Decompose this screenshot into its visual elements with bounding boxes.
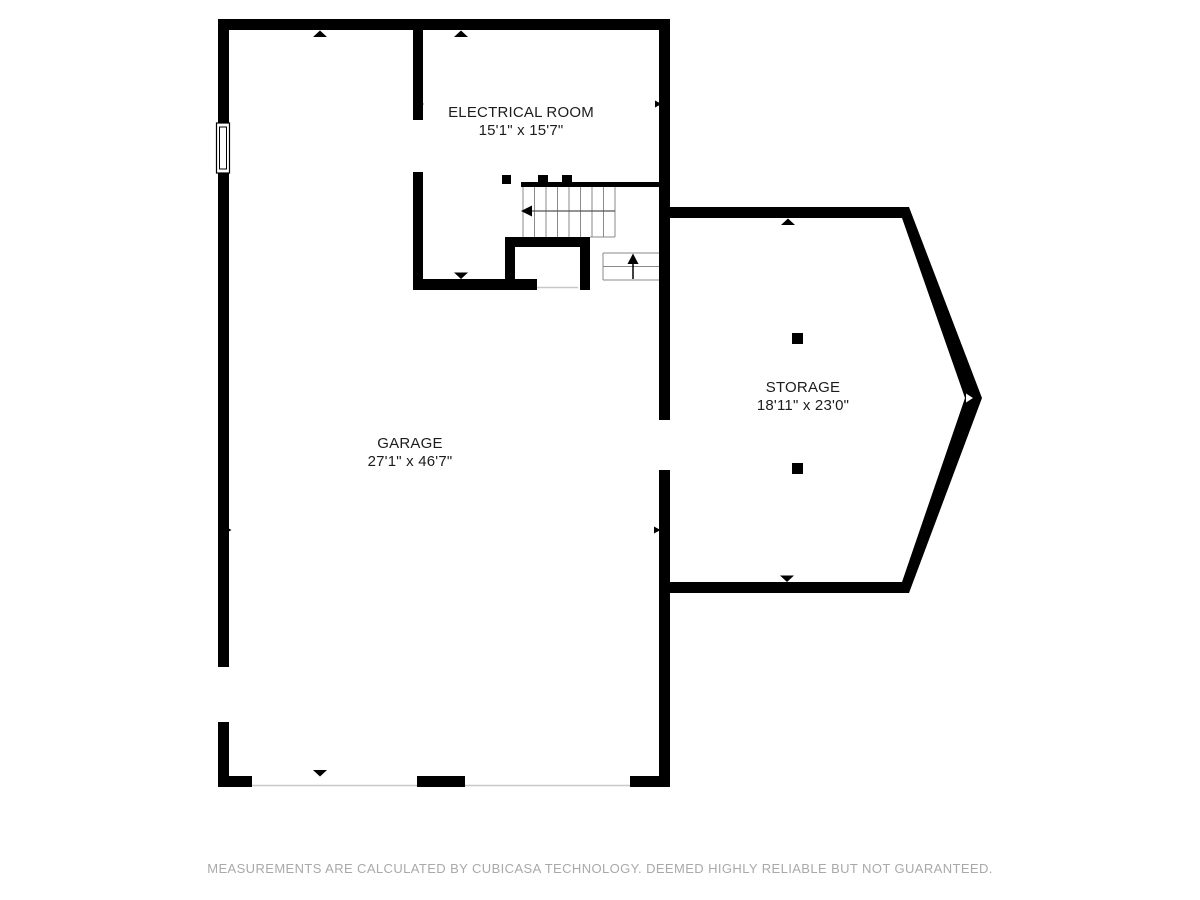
- window-icon: [217, 123, 230, 173]
- stair-arrow-left: [521, 206, 615, 217]
- room-name: STORAGE: [757, 379, 849, 397]
- room-name: ELECTRICAL ROOM: [448, 104, 594, 122]
- room-label-garage: GARAGE 27'1" x 46'7": [368, 435, 453, 471]
- room-label-storage: STORAGE 18'11" x 23'0": [757, 379, 849, 415]
- staircase-lower: [603, 253, 659, 280]
- room-dimensions: 15'1" x 15'7": [448, 122, 594, 140]
- footer-disclaimer: MEASUREMENTS ARE CALCULATED BY CUBICASA …: [0, 861, 1200, 876]
- interior-walls: [413, 30, 659, 290]
- exterior-walls: [218, 19, 670, 787]
- room-dimensions: 27'1" x 46'7": [368, 453, 453, 471]
- room-dimensions: 18'11" x 23'0": [757, 397, 849, 415]
- floor-plan-drawing: [0, 0, 1200, 900]
- room-name: GARAGE: [368, 435, 453, 453]
- staircase-upper: [521, 187, 615, 237]
- room-label-electrical-room: ELECTRICAL ROOM 15'1" x 15'7": [448, 104, 594, 140]
- floor-plan-page: ELECTRICAL ROOM 15'1" x 15'7" GARAGE 27'…: [0, 0, 1200, 900]
- wall-markers: [225, 31, 973, 777]
